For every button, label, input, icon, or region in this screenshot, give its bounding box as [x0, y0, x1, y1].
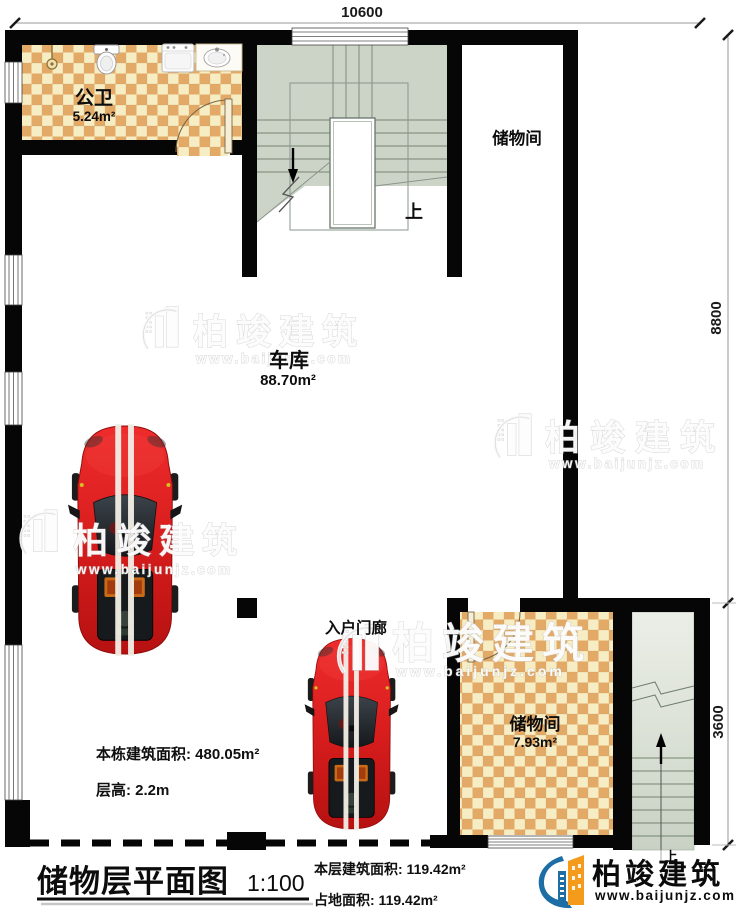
car-porch — [305, 637, 399, 831]
brand-logo-icon — [539, 855, 584, 908]
garage-pier — [227, 832, 266, 850]
sink-icon — [196, 44, 242, 71]
window-stairwell-top — [292, 28, 408, 45]
dim-height-lower-label: 3600 — [710, 705, 727, 738]
window-left-1 — [5, 62, 22, 103]
watermark-text: 柏竣建筑 — [73, 521, 245, 561]
storage-bottom-area: 7.93m² — [513, 734, 558, 750]
watermark-1: 柏竣建筑 www.baijunjz.com — [143, 307, 365, 366]
floor-plan-page: 10600 8800 3600 — [0, 0, 750, 919]
washing-machine-icon — [162, 44, 194, 72]
footprint-area-note: 占地面积: 119.42m² — [314, 892, 438, 908]
title-block: 储物层平面图 1:100 本层建筑面积: 119.42m² 占地面积: 119.… — [37, 861, 466, 908]
window-left-4 — [5, 645, 22, 800]
main-staircase: 上 — [257, 45, 447, 230]
bathroom-label: 公卫 — [75, 87, 113, 109]
floor-plan-drawing: 10600 8800 3600 — [0, 0, 750, 919]
watermark-2: 柏竣建筑 www.baijunjz.com — [495, 414, 725, 471]
window-storage-bottom — [488, 836, 573, 848]
stair-up-label: 上 — [405, 202, 423, 222]
floor-area-note: 本层建筑面积: 119.42m² — [314, 861, 466, 877]
entry-staircase: 上 — [632, 612, 694, 864]
porch-label: 入户门廊 — [325, 618, 388, 637]
watermark-text: 柏竣建筑 — [392, 620, 592, 667]
watermark-site: www.baijunjz.com — [75, 562, 233, 577]
watermark-site: www.baijunjz.com — [395, 663, 565, 679]
bathroom-area: 5.24m² — [73, 109, 116, 124]
dimension-top: 10600 — [10, 4, 705, 28]
drawing-scale: 1:100 — [247, 870, 305, 896]
storage-top-label: 储物间 — [492, 128, 542, 148]
brand-website: www.baijunjz.com — [594, 888, 736, 903]
page-title: 储物层平面图 — [37, 864, 229, 899]
garage-area: 88.70m² — [260, 372, 316, 389]
brand-name: 柏竣建筑 — [592, 857, 724, 891]
watermark-text: 柏竣建筑 — [545, 418, 725, 458]
dim-height-upper-label: 8800 — [708, 301, 725, 334]
brand-logo: 柏竣建筑 www.baijunjz.com — [539, 855, 736, 908]
building-total-area-note: 本栋建筑面积: 480.05m² — [96, 745, 259, 763]
garage-label: 车库 — [269, 348, 309, 372]
window-left-2 — [5, 255, 22, 305]
window-left-3 — [5, 372, 22, 425]
dim-width-label: 10600 — [341, 4, 383, 21]
watermark-site: www.baijunjz.com — [548, 456, 706, 471]
watermark-text: 柏竣建筑 — [193, 312, 365, 352]
structural-column — [237, 598, 257, 618]
floor-height-note: 层高: 2.2m — [96, 781, 169, 799]
storage-bottom-label: 储物间 — [510, 714, 561, 734]
